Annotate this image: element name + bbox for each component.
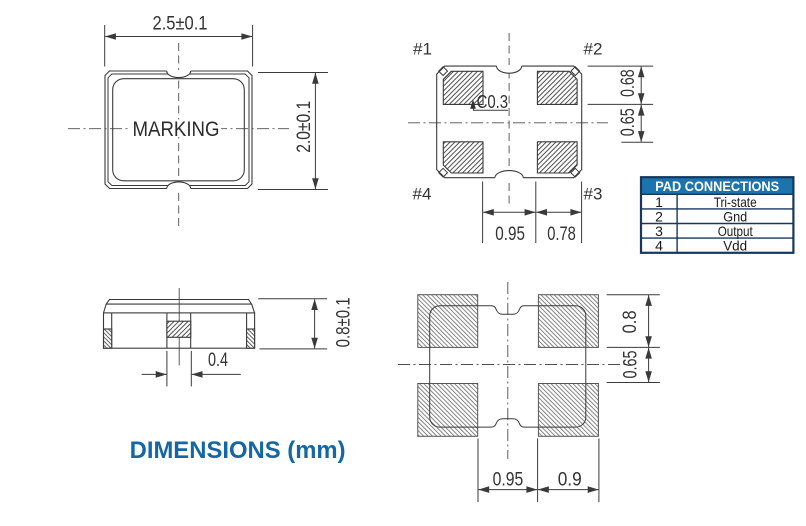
svg-text:2: 2 — [655, 209, 663, 225]
svg-text:Gnd: Gnd — [723, 209, 747, 225]
svg-text:0.4: 0.4 — [208, 349, 228, 371]
svg-text:4: 4 — [655, 238, 663, 254]
svg-text:#4: #4 — [413, 185, 432, 204]
svg-text:#3: #3 — [584, 185, 603, 204]
svg-text:C0.3: C0.3 — [477, 91, 509, 112]
svg-text:#1: #1 — [413, 40, 432, 59]
svg-text:0.8: 0.8 — [619, 310, 641, 333]
svg-text:0.8±0.1: 0.8±0.1 — [332, 297, 354, 347]
svg-text:DIMENSIONS (mm): DIMENSIONS (mm) — [130, 437, 346, 464]
svg-text:2.5±0.1: 2.5±0.1 — [153, 13, 208, 35]
svg-text:0.65: 0.65 — [620, 350, 642, 378]
svg-text:2.0±0.1: 2.0±0.1 — [293, 101, 315, 153]
svg-text:0.95: 0.95 — [495, 223, 525, 245]
svg-text:Output: Output — [718, 223, 753, 239]
svg-text:0.95: 0.95 — [493, 468, 524, 490]
svg-text:MARKING: MARKING — [133, 118, 220, 141]
svg-text:0.78: 0.78 — [547, 223, 576, 245]
svg-text:0.65: 0.65 — [617, 108, 639, 136]
svg-text:0.68: 0.68 — [617, 69, 639, 97]
svg-text:0.9: 0.9 — [558, 468, 582, 490]
svg-text:#2: #2 — [584, 40, 603, 59]
svg-text:Vdd: Vdd — [723, 238, 747, 254]
svg-text:PAD CONNECTIONS: PAD CONNECTIONS — [655, 179, 779, 194]
svg-text:3: 3 — [655, 223, 663, 239]
svg-text:Tri-state: Tri-state — [714, 194, 757, 210]
svg-text:1: 1 — [655, 194, 663, 210]
